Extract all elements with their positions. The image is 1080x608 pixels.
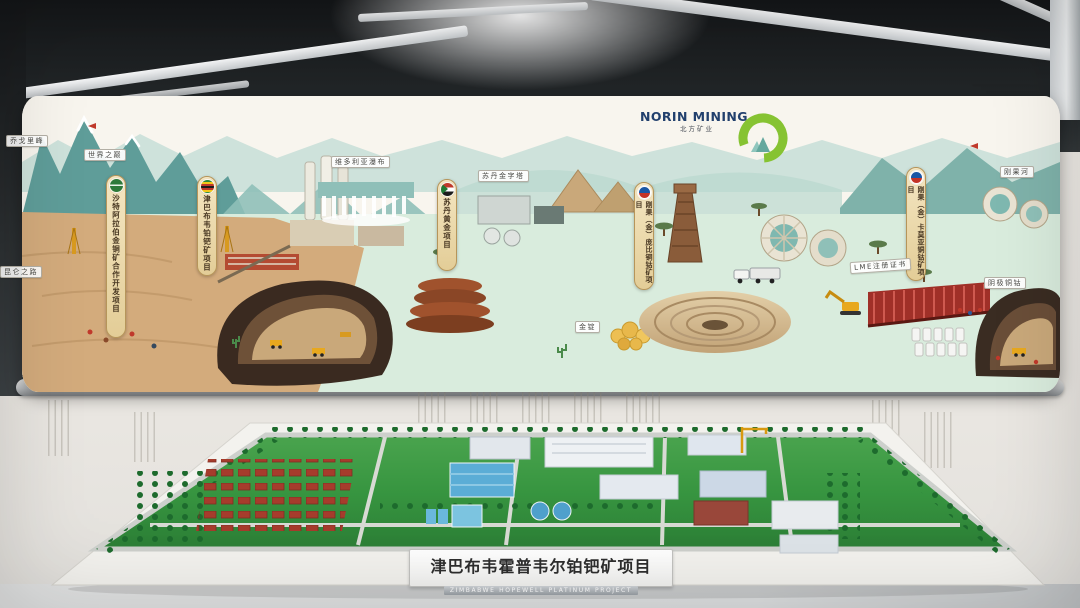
place-label-peak: 乔戈里峰	[6, 135, 48, 147]
project-banner-label: 刚果（金）庞比铜钴矿项目	[634, 201, 654, 286]
project-banner-drc-pumpi: 刚果（金）庞比铜钴矿项目	[634, 182, 654, 290]
saudi-arabia-flag-icon	[110, 179, 123, 192]
spiral-open-pit	[639, 291, 791, 353]
led-panorama-screen	[22, 96, 1060, 392]
brand-wordmark: NORIN MINING	[640, 111, 748, 124]
company-roundel-icon	[910, 171, 923, 184]
project-banner-zimbabwe: 津巴布韦铂钯矿项目	[197, 176, 217, 276]
terraced-open-pit	[406, 278, 494, 333]
place-label-kunlun-road: 昆仑之路	[0, 266, 42, 278]
panorama-illustration	[22, 96, 1060, 392]
model-brick-building	[694, 501, 748, 525]
nameplate-chinese: 津巴布韦霍普韦尔铂钯矿项目	[410, 553, 672, 577]
company-roundel-icon	[638, 186, 651, 199]
zimbabwe-flag-icon	[201, 180, 214, 193]
project-banner-saudi: 沙特阿拉伯金铜矿合作开发项目	[106, 175, 126, 338]
nameplate-english: ZIMBABWE HOPEWELL PLATINUM PROJECT	[444, 586, 638, 595]
norin-mining-logo: NORIN MINING 北方矿业	[640, 111, 748, 132]
green-ring-logo	[736, 108, 790, 174]
project-banner-label: 津巴布韦铂钯矿项目	[202, 195, 213, 272]
sudan-flag-icon	[441, 183, 454, 196]
place-label-victoria-falls: 维多利亚瀑布	[331, 156, 390, 168]
project-banner-label: 苏丹黄金项目	[442, 198, 453, 249]
place-label-world-summit: 世界之巅	[84, 149, 126, 161]
haul-truck	[734, 268, 780, 283]
place-label-congo-river: 刚果河	[1000, 166, 1034, 178]
place-label-cathode-copper: 阴极铜钴	[984, 277, 1026, 289]
project-banner-sudan: 苏丹黄金项目	[437, 179, 457, 271]
place-label-sudan-pyramids: 苏丹金字塔	[478, 170, 529, 182]
place-label-gold-ingot: 金锭	[575, 321, 600, 333]
project-banner-label: 沙特阿拉伯金铜矿合作开发项目	[111, 194, 122, 313]
model-nameplate: 津巴布韦霍普韦尔铂钯矿项目 ZIMBABWE HOPEWELL PLATINUM…	[409, 549, 673, 587]
exhibition-photo: NORIN MINING 北方矿业 沙特阿拉伯金铜矿合作开发项目 津巴布韦铂钯矿…	[0, 0, 1080, 608]
model-residential-area	[196, 459, 356, 531]
